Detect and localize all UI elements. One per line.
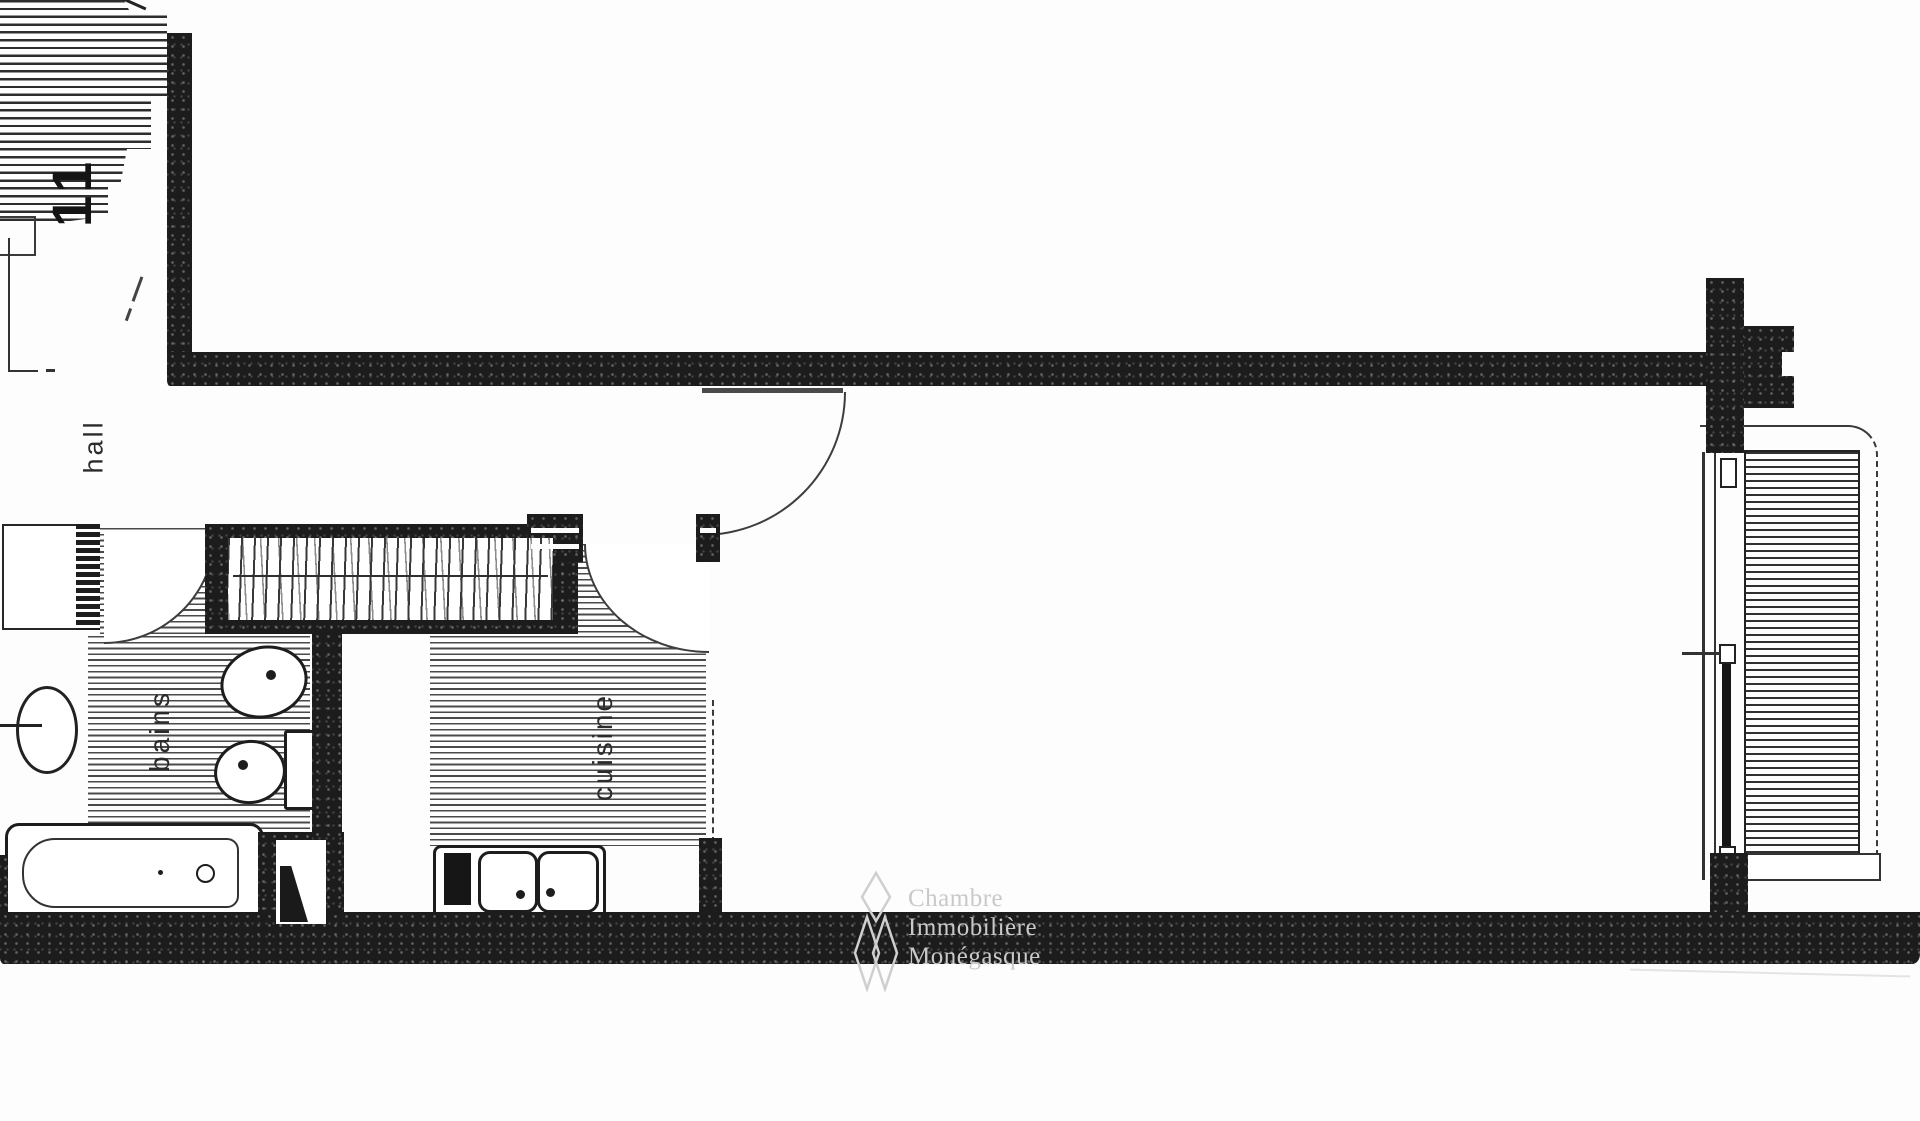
stair-number-text: 11	[39, 155, 104, 226]
landing-step-outline	[0, 216, 36, 256]
clothes-rail	[233, 575, 548, 577]
jamb-slit-1	[531, 528, 579, 533]
landing-line-horizontal	[8, 370, 38, 372]
washbasin-tick	[0, 724, 42, 727]
watermark-line-1: Chambre	[908, 884, 1041, 913]
stair-wall	[167, 33, 192, 363]
cuisine-label: cuisine	[574, 668, 632, 826]
kitchen-stub-slit	[700, 528, 716, 533]
sink-drain-dot-right	[546, 888, 555, 897]
closet-left	[2, 524, 79, 630]
balcony-bottom-frame	[1744, 853, 1881, 881]
hall-label-text: hall	[79, 419, 110, 473]
cim-logo-icon	[852, 870, 900, 992]
watermark-line-2: Immobilière	[908, 913, 1041, 942]
shutter-block	[1744, 450, 1860, 857]
wardrobe-interior	[228, 538, 553, 620]
watermark-text: Chambre Immobilière Monégasque	[908, 884, 1041, 971]
stair-guide-dash-1	[132, 276, 143, 301]
bathtub-dot	[158, 870, 163, 875]
window-pane-cap-upper	[1720, 458, 1737, 488]
window-pane	[1722, 660, 1731, 850]
bathtub-drain	[196, 864, 215, 883]
top-wall	[167, 352, 1745, 386]
hall-label: hall	[62, 398, 126, 494]
jamb-slit-2	[531, 544, 579, 549]
stair-guide-dash-2	[125, 308, 132, 321]
louver-door	[76, 524, 100, 630]
sink-drainer	[444, 853, 471, 905]
sink-bowl-left	[478, 851, 538, 913]
kitchen-wall-stub-top	[696, 514, 720, 562]
kitchen-open-edge-dashed	[712, 700, 714, 843]
landing-dash	[46, 369, 55, 372]
entry-door-leaf	[702, 388, 843, 393]
window-track-line-inner	[1714, 452, 1716, 880]
stair-number-label: 11	[36, 148, 108, 234]
right-junction-notch	[1782, 352, 1796, 376]
sink-bowl-right	[537, 851, 599, 913]
sink-drain-dot-left	[516, 890, 525, 899]
bidet-drain-dot	[238, 760, 248, 770]
cuisine-label-text: cuisine	[587, 693, 619, 801]
scan-artifact-line	[1630, 969, 1910, 978]
watermark: Chambre Immobilière Monégasque	[852, 870, 1172, 995]
window-tick	[1682, 652, 1720, 655]
bains-label: bains	[130, 672, 190, 790]
floor-plan-stage: 11 hall bains	[0, 0, 1920, 1121]
kitchen-floor-hatch	[430, 636, 706, 846]
window-pane-cap-top	[1719, 644, 1736, 664]
washbasin-icon	[16, 686, 78, 774]
toilet-drain-dot	[266, 670, 276, 680]
window-track-line-outer	[1702, 452, 1705, 880]
bains-label-text: bains	[144, 690, 176, 772]
living-room-area	[730, 400, 1680, 890]
right-junction-wall	[1706, 278, 1744, 453]
watermark-line-3: Monégasque	[908, 942, 1041, 971]
landing-line-vertical	[8, 238, 10, 372]
